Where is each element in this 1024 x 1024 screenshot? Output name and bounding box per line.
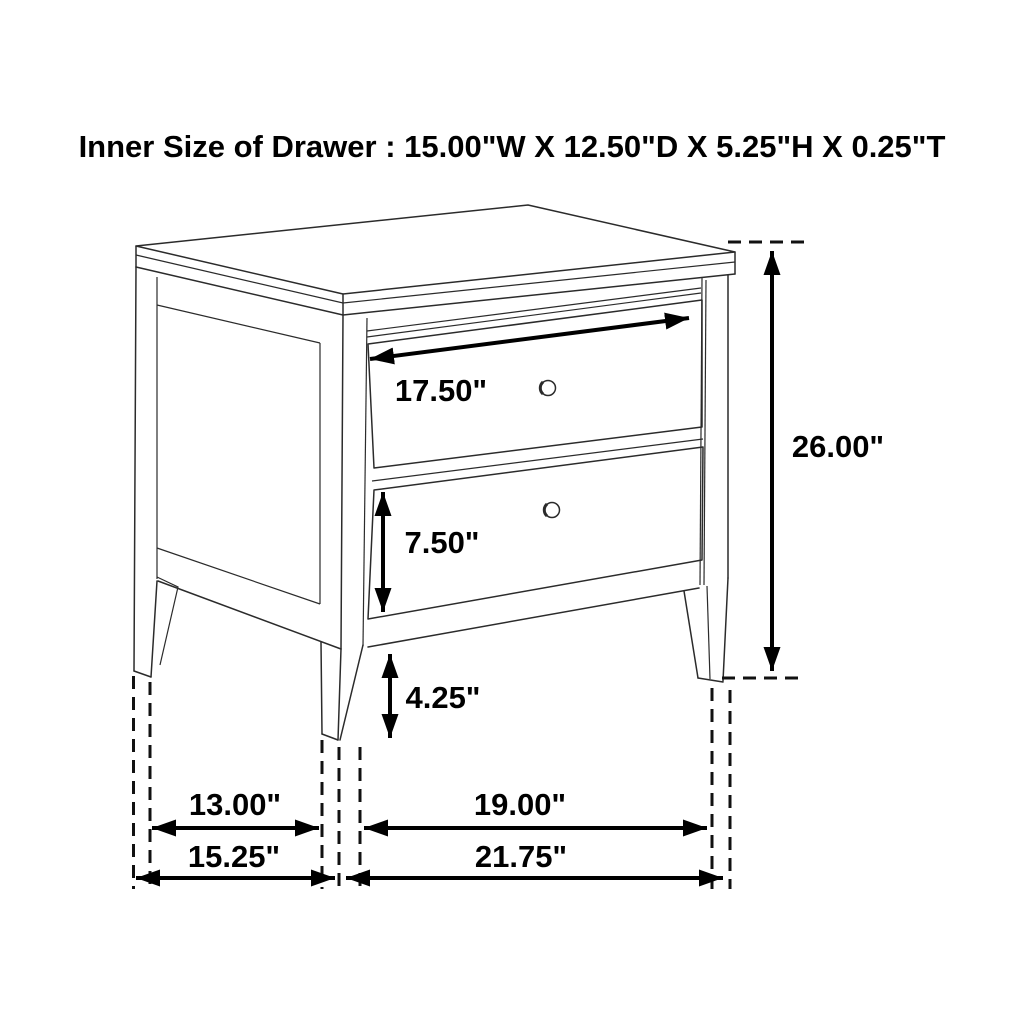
front-left-leg-outer	[321, 642, 322, 734]
label-front-leg-spacing: 19.00"	[474, 787, 566, 822]
front-right-leg	[684, 578, 728, 682]
front-apron-bottom	[368, 588, 699, 647]
nightstand-drawing	[134, 205, 735, 740]
front-left-stile	[341, 315, 367, 649]
label-lower-drawer-height: 7.50"	[404, 525, 479, 560]
tabletop-top-face	[136, 205, 735, 294]
top-rail-line-2	[367, 293, 701, 337]
front-left-leg	[321, 642, 363, 740]
nightstand-dimension-drawing: 17.50" 26.00" 7.50" 4.25" 13.00" 19.00" …	[0, 0, 1024, 1024]
bottom-drawer-knob-shade	[544, 504, 547, 516]
label-side-leg-spacing: 13.00"	[189, 787, 281, 822]
side-bottom-rail-bottom	[158, 581, 341, 649]
front-left-leg-bottom	[322, 734, 338, 740]
mid-rail	[372, 439, 703, 481]
front-right-leg-taper	[684, 591, 698, 678]
label-drawer-face-width: 17.50"	[395, 373, 487, 408]
product-dimension-diagram: Inner Size of Drawer : 15.00"W X 12.50"D…	[0, 0, 1024, 1024]
side-bottom-rail-top	[157, 548, 320, 604]
side-top-rail-bottom	[157, 305, 320, 343]
label-overall-depth: 15.25"	[188, 839, 280, 874]
back-left-leg-bottom	[134, 671, 151, 677]
front-right-leg-outer	[723, 578, 728, 681]
front-left-corner-edge	[341, 315, 343, 649]
front-left-leg-taper	[340, 645, 363, 740]
tabletop	[136, 205, 735, 315]
front-left-leg-corner	[338, 649, 341, 740]
front-right-stile	[700, 275, 728, 585]
label-leg-height: 4.25"	[405, 680, 480, 715]
top-drawer-knob-shade	[540, 382, 543, 394]
back-left-leg	[134, 577, 178, 677]
back-left-leg-inner-face	[157, 577, 178, 665]
label-overall-height: 26.00"	[792, 429, 884, 464]
label-overall-width: 21.75"	[475, 839, 567, 874]
front-right-leg-inner	[707, 586, 710, 679]
mid-rail-line	[372, 439, 703, 481]
front-left-stile-inner	[363, 318, 367, 646]
back-left-leg-taper	[151, 581, 157, 677]
side-back-edge	[134, 267, 136, 671]
front-right-stile-inner-2	[704, 280, 706, 585]
left-side-panel	[134, 267, 341, 671]
